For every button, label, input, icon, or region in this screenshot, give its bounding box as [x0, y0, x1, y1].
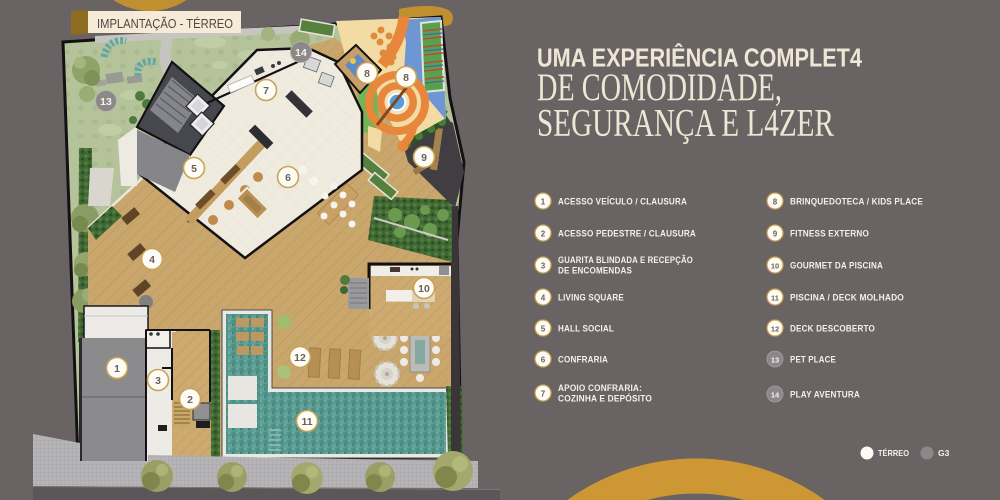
- svg-text:GOURMET DA PISCINA: GOURMET DA PISCINA: [790, 261, 883, 271]
- svg-text:PET PLACE: PET PLACE: [790, 355, 836, 365]
- svg-text:13: 13: [100, 96, 112, 108]
- svg-text:14: 14: [771, 391, 780, 400]
- svg-text:2: 2: [187, 394, 193, 406]
- svg-text:IMPLANTAÇÃO - TÉRREO: IMPLANTAÇÃO - TÉRREO: [97, 16, 233, 31]
- svg-text:COZINHA E DEPÓSITO: COZINHA E DEPÓSITO: [558, 393, 652, 404]
- svg-text:1: 1: [541, 198, 546, 207]
- svg-text:4: 4: [541, 294, 546, 303]
- svg-text:11: 11: [771, 294, 779, 303]
- svg-text:4: 4: [149, 254, 155, 266]
- svg-text:TÉRREO: TÉRREO: [878, 448, 909, 458]
- svg-text:12: 12: [294, 352, 306, 364]
- svg-text:FITNESS EXTERNO: FITNESS EXTERNO: [790, 229, 869, 239]
- svg-text:LIVING SQUARE: LIVING SQUARE: [558, 293, 624, 303]
- svg-text:8: 8: [773, 198, 778, 207]
- svg-text:GUARITA BLINDADA E RECEPÇÃO: GUARITA BLINDADA E RECEPÇÃO: [558, 255, 693, 265]
- svg-text:6: 6: [541, 356, 546, 365]
- svg-text:DECK DESCOBERTO: DECK DESCOBERTO: [790, 324, 875, 334]
- svg-text:PLAY AVENTURA: PLAY AVENTURA: [790, 390, 860, 400]
- svg-text:3: 3: [155, 375, 161, 387]
- svg-text:DE ENCOMENDAS: DE ENCOMENDAS: [558, 266, 632, 276]
- svg-text:CONFRARIA: CONFRARIA: [558, 355, 608, 365]
- svg-text:G3: G3: [938, 448, 950, 458]
- svg-text:6: 6: [285, 172, 291, 184]
- svg-text:HALL SOCIAL: HALL SOCIAL: [558, 324, 614, 334]
- svg-text:PISCINA / DECK MOLHADO: PISCINA / DECK MOLHADO: [790, 293, 904, 303]
- svg-text:5: 5: [541, 325, 546, 334]
- svg-text:8: 8: [403, 72, 409, 84]
- svg-text:7: 7: [263, 85, 269, 97]
- svg-text:8: 8: [364, 68, 370, 80]
- svg-text:10: 10: [418, 283, 430, 295]
- svg-text:7: 7: [541, 390, 546, 399]
- svg-text:APOIO CONFRARIA:: APOIO CONFRARIA:: [558, 383, 642, 393]
- svg-text:ACESSO PEDESTRE / CLAUSURA: ACESSO PEDESTRE / CLAUSURA: [558, 229, 696, 239]
- svg-text:BRINQUEDOTECA / KIDS PLACE: BRINQUEDOTECA / KIDS PLACE: [790, 197, 923, 207]
- svg-text:10: 10: [771, 262, 779, 271]
- svg-text:9: 9: [421, 152, 427, 164]
- svg-text:11: 11: [301, 416, 312, 428]
- svg-text:13: 13: [771, 356, 779, 365]
- svg-text:14: 14: [295, 47, 307, 59]
- svg-text:ACESSO VEÍCULO / CLAUSURA: ACESSO VEÍCULO / CLAUSURA: [558, 197, 687, 207]
- svg-text:5: 5: [191, 163, 197, 175]
- svg-text:9: 9: [773, 230, 778, 239]
- svg-text:12: 12: [771, 325, 779, 334]
- svg-text:1: 1: [114, 363, 120, 375]
- svg-text:2: 2: [541, 230, 546, 239]
- svg-text:3: 3: [541, 262, 546, 271]
- svg-text:SEGURANÇA E L4ZER: SEGURANÇA E L4ZER: [537, 102, 834, 145]
